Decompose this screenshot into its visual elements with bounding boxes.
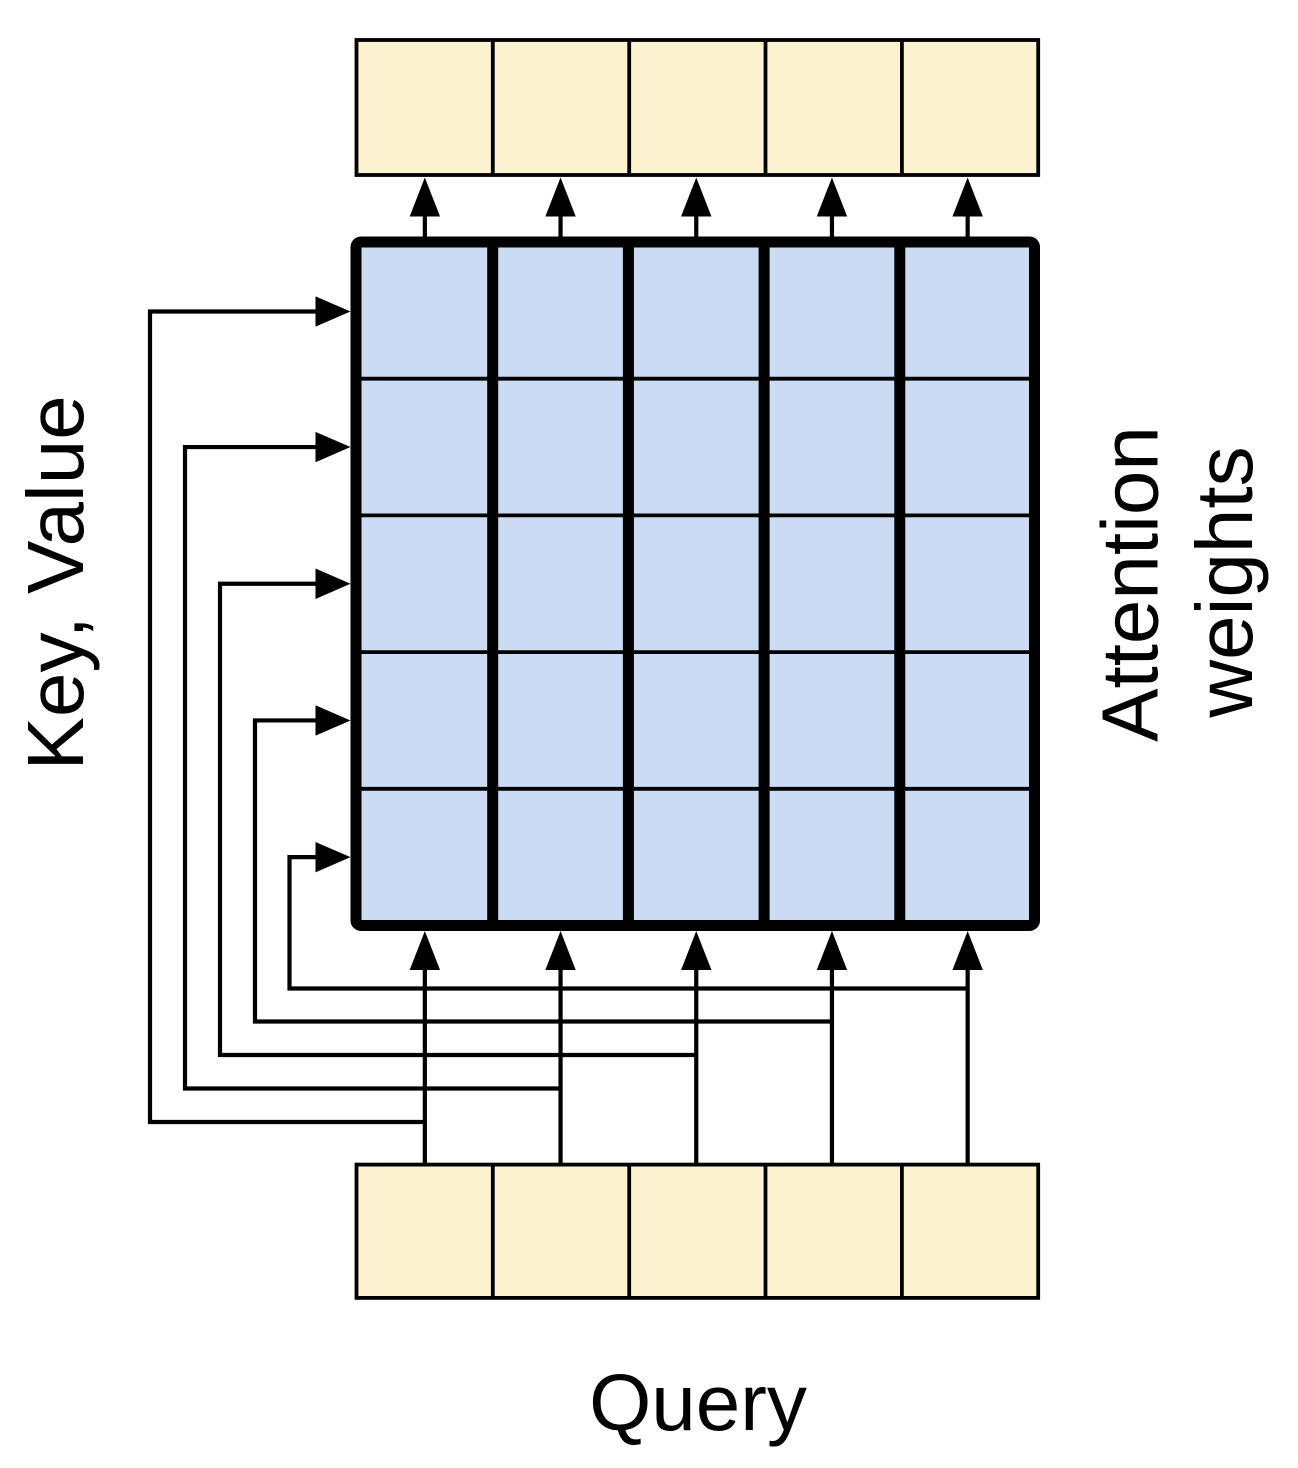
svg-text:weights: weights	[1180, 446, 1269, 718]
svg-text:Key, Value: Key, Value	[11, 395, 100, 770]
svg-text:Query: Query	[589, 1358, 807, 1447]
svg-text:Attention: Attention	[1086, 426, 1175, 742]
